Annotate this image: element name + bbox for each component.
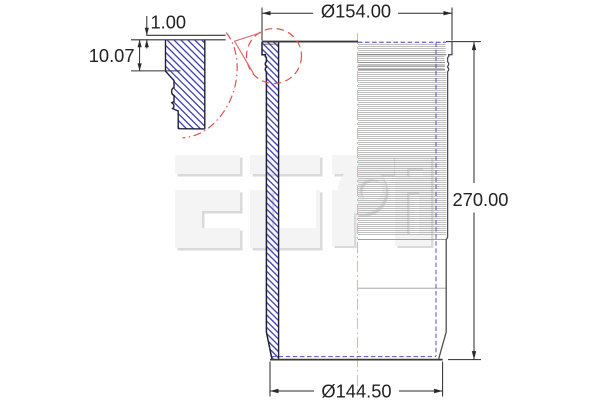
svg-text:Ø144.50: Ø144.50 (321, 381, 391, 400)
svg-text:270.00: 270.00 (453, 189, 509, 210)
svg-text:1.00: 1.00 (151, 12, 187, 33)
svg-text:10.07: 10.07 (89, 45, 135, 66)
svg-text:Ø154.00: Ø154.00 (321, 1, 391, 22)
